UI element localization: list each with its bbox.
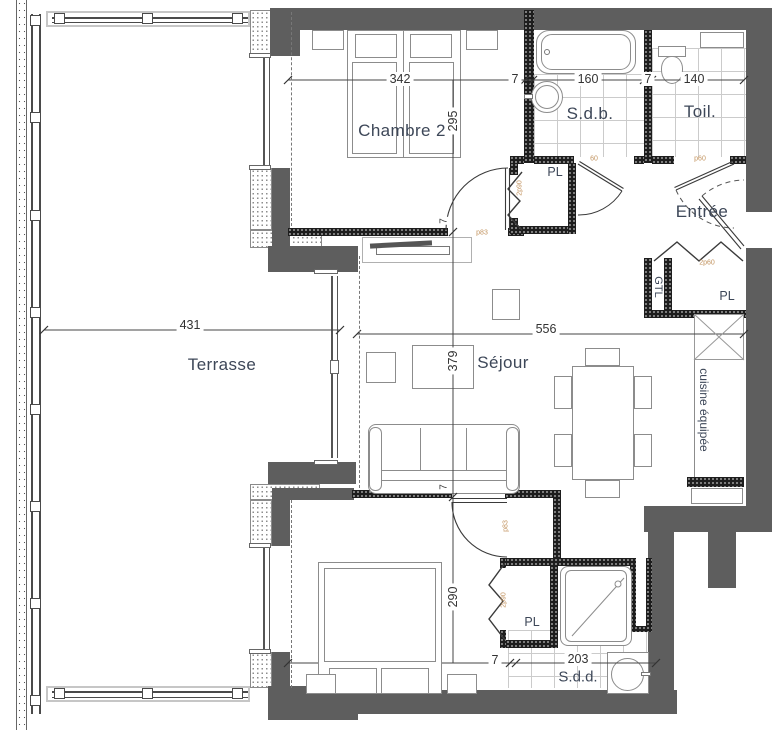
dim-jamb-bottom: 7 xyxy=(439,483,450,491)
closet-entree-right xyxy=(568,163,576,234)
room-label-entree: Entrée xyxy=(676,202,729,222)
wall-chambre1-north-west xyxy=(290,488,354,500)
dim-sejour-depth: 379 xyxy=(446,348,460,375)
door-leaf-sdb xyxy=(578,162,624,192)
railing-post xyxy=(142,688,153,699)
sofa-armrest-left xyxy=(369,427,382,491)
sofa-back-line xyxy=(382,470,506,471)
railing-post xyxy=(232,688,243,699)
room-label-sejour: Séjour xyxy=(477,353,529,373)
wall-sdd-top xyxy=(558,558,632,566)
dim-sdd-width: 203 xyxy=(565,652,592,666)
closet-chambre1-jamb-bottom xyxy=(500,630,506,648)
dim-wall-top-a: 7 xyxy=(509,72,522,86)
door-tag-sdb: 60 xyxy=(590,156,598,163)
sofa-cushion-line xyxy=(420,428,421,470)
railing-post xyxy=(30,112,41,123)
wall-west-chambre1-top xyxy=(272,488,290,546)
exterior-wall-pillar-br xyxy=(708,532,736,588)
window-chambre2-glass xyxy=(263,58,265,166)
dim-terrasse-width: 431 xyxy=(177,318,204,332)
sofa-cushion-line2 xyxy=(466,428,467,470)
room-label-cuisine: cuisine équipée xyxy=(697,368,711,451)
railing-post xyxy=(54,688,65,699)
bathtub-tap xyxy=(544,49,550,55)
wall-west-chambre2-bottom xyxy=(272,168,290,248)
window-chambre2-cap-bottom xyxy=(249,165,271,170)
window-chambre2-cap-top xyxy=(249,53,271,58)
wall-west-chambre2-top xyxy=(270,8,300,56)
washbasin-sdb-inner xyxy=(535,85,559,109)
kitchen-shaft xyxy=(694,314,744,360)
sofa-armrest-right xyxy=(506,427,519,491)
wall-toil-south-right xyxy=(730,156,746,164)
nightstand xyxy=(447,674,477,694)
nightstand xyxy=(466,30,498,50)
closet-label-pl-entree: PL xyxy=(547,165,562,179)
room-label-sdb: S.d.b. xyxy=(567,104,614,124)
wall-chambre2-south-west xyxy=(288,228,448,236)
kitchen-south-wall xyxy=(687,477,744,487)
shower-tray-inner xyxy=(565,570,627,642)
room-label-toil: Toil. xyxy=(684,102,716,122)
closet-entree-bottom xyxy=(510,226,576,234)
dim-chambre2-width: 342 xyxy=(387,72,414,86)
dim-wall-top-b: 7 xyxy=(642,72,655,86)
washbasin-sdd-tap xyxy=(641,672,651,676)
window-chambre1-cap-bottom xyxy=(249,649,271,654)
door-leaf-chambre1 xyxy=(452,499,507,503)
dim-chambre1-depth: 290 xyxy=(446,584,460,611)
door-swing-chambre2 xyxy=(446,168,508,230)
closet-chambre1-right xyxy=(550,558,558,648)
window-chambre2-glass2 xyxy=(269,58,270,166)
window-chambre1-cap-top xyxy=(249,543,271,548)
dim-jamb-top: 7 xyxy=(439,217,450,225)
pouf xyxy=(492,289,520,320)
coffee-table xyxy=(412,345,474,389)
exterior-wall-right-upper xyxy=(746,8,772,212)
room-label-terrasse: Terrasse xyxy=(188,355,256,375)
wall-west-chambre1-bottom xyxy=(272,652,290,688)
railing-post xyxy=(54,13,65,24)
kitchen-low-cabinet xyxy=(691,488,743,504)
dim-wall-bottom: 7 xyxy=(489,653,502,667)
wall-chambre1-sdd xyxy=(553,490,561,566)
door-tag-chambre2: p83 xyxy=(476,230,488,237)
dining-table xyxy=(572,366,634,480)
washbasin-sdd xyxy=(611,658,644,691)
sdd-niche-right xyxy=(646,558,652,632)
railing-post xyxy=(30,501,41,512)
door-tag-closet-chambre1: 2p90 xyxy=(501,592,508,608)
railing-post xyxy=(30,598,41,609)
sdd-niche-bottom xyxy=(630,626,652,632)
sdd-niche-interior xyxy=(636,564,646,624)
door-tag-chambre1: p83 xyxy=(503,520,510,532)
closet-entree-left-jamb-top xyxy=(510,163,518,175)
dining-chair xyxy=(554,434,572,467)
door-tag-closet-chambre2: 2p90 xyxy=(517,180,524,196)
window-bay-cap-top xyxy=(314,269,338,274)
washbasin-tap xyxy=(524,94,533,99)
terrace-outer-edge xyxy=(16,0,27,730)
door-leaf-chambre2 xyxy=(506,168,510,230)
dashed-line-sejour xyxy=(359,256,360,488)
pillow xyxy=(381,668,429,694)
railing-post xyxy=(30,695,41,706)
exterior-wall-right-mid xyxy=(746,248,772,532)
dim-sejour-width: 556 xyxy=(533,322,560,336)
bathtub-inner xyxy=(541,34,631,70)
wall-sdb-toil xyxy=(644,30,652,163)
wall-chambre2-sdb xyxy=(524,10,534,163)
closet-gtl-divider xyxy=(664,258,672,316)
closet-gtl-left xyxy=(644,258,652,316)
exterior-wall-step-br xyxy=(644,506,772,532)
nightstand xyxy=(312,30,344,50)
door-swing-sdb xyxy=(578,191,622,215)
room-label-sdd: S.d.d. xyxy=(558,669,597,686)
window-bay-handle xyxy=(330,360,339,374)
closet-label-pl-kitchen: PL xyxy=(719,289,734,303)
railing-post xyxy=(232,13,243,24)
insulated-wall xyxy=(250,168,272,230)
window-chambre1 xyxy=(250,546,286,652)
pillow xyxy=(410,34,452,58)
wall-toil-south-left xyxy=(652,156,674,164)
closet-chambre1-jamb-top xyxy=(500,558,506,568)
closet-label-pl-chambre1: PL xyxy=(524,615,539,629)
dim-toil-width: 140 xyxy=(681,72,708,86)
dim-sdb-width: 160 xyxy=(575,72,602,86)
floor-plan: Chambre 2 S.d.b. Toil. Entrée Terrasse S… xyxy=(0,0,774,730)
insulated-wall xyxy=(250,10,272,56)
pillow xyxy=(329,668,377,694)
wall-sejour-west-upper xyxy=(268,246,358,272)
railing-post xyxy=(30,404,41,415)
insulated-wall xyxy=(250,500,272,546)
dim-chambre2-depth: 295 xyxy=(446,108,460,135)
railing-post xyxy=(30,15,41,26)
pillow xyxy=(355,34,397,58)
window-chambre2 xyxy=(250,56,286,168)
label-gtl: GTL xyxy=(652,276,664,297)
railing-post xyxy=(30,210,41,221)
door-leaf-toil xyxy=(675,162,735,191)
room-label-chambre2: Chambre 2 xyxy=(358,121,446,141)
door-tag-toil: p60 xyxy=(694,156,706,163)
mattress xyxy=(324,568,436,662)
window-chambre1-glass xyxy=(263,548,265,650)
door-swing-entree xyxy=(702,180,744,196)
wall-sejour-west-lower xyxy=(268,462,356,484)
dashed-line-chambre1 xyxy=(291,500,292,688)
window-bay-cap-bottom xyxy=(314,460,338,465)
dining-chair xyxy=(634,434,652,467)
toil-shelf xyxy=(700,32,744,48)
dining-chair xyxy=(554,376,572,409)
window-chambre1-glass2 xyxy=(269,548,270,650)
dining-chair xyxy=(585,480,620,498)
door-tag-closet-gtl: 2p60 xyxy=(699,260,715,267)
railing-post xyxy=(30,307,41,318)
door-swing-chambre1 xyxy=(452,502,507,557)
dining-chair xyxy=(634,376,652,409)
armchair xyxy=(366,352,396,383)
insulated-wall xyxy=(250,652,272,688)
dashed-line-chambre2 xyxy=(291,12,292,226)
sofa-back-line2 xyxy=(382,480,506,481)
railing-post xyxy=(142,13,153,24)
nightstand xyxy=(306,674,336,694)
wall-sdb-south-right xyxy=(634,156,644,164)
dining-chair xyxy=(585,348,620,366)
kitchen-counter-edge xyxy=(694,360,695,477)
